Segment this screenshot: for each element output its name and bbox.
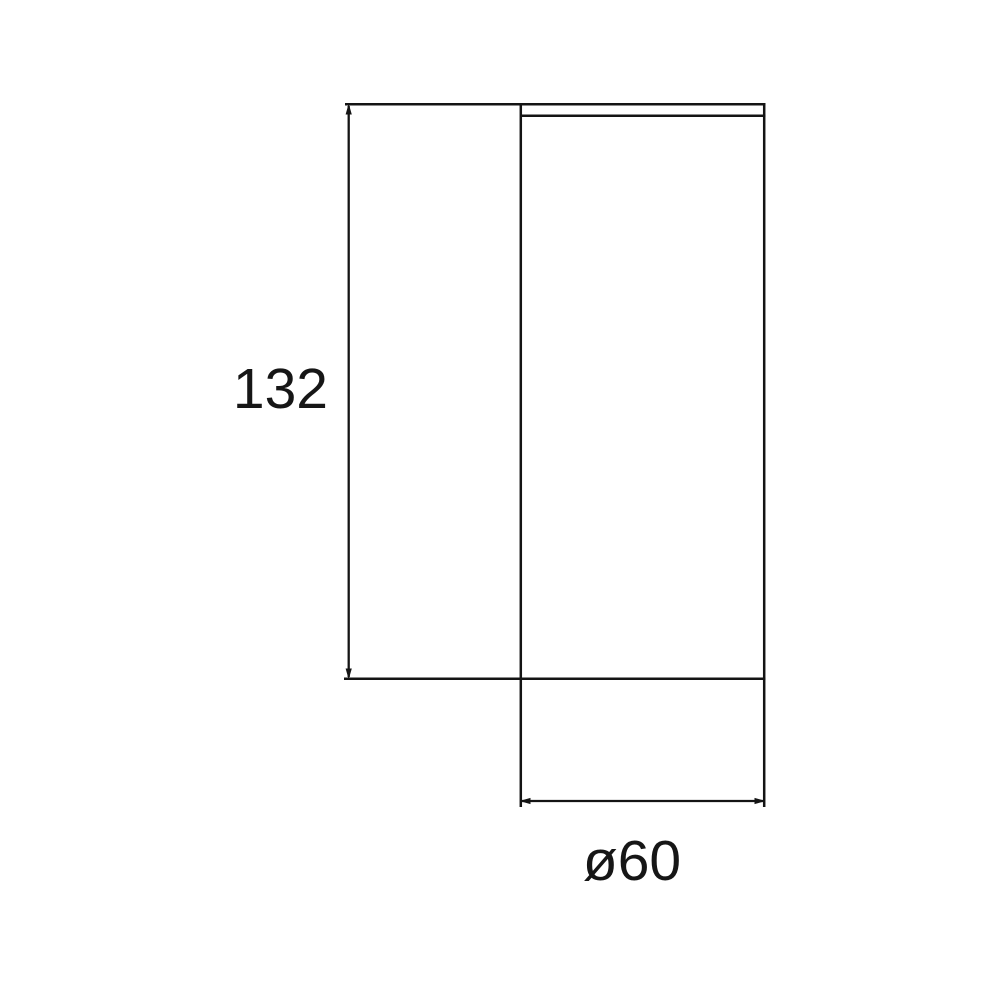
svg-text:ø60: ø60	[583, 829, 681, 893]
svg-text:132: 132	[233, 357, 328, 421]
